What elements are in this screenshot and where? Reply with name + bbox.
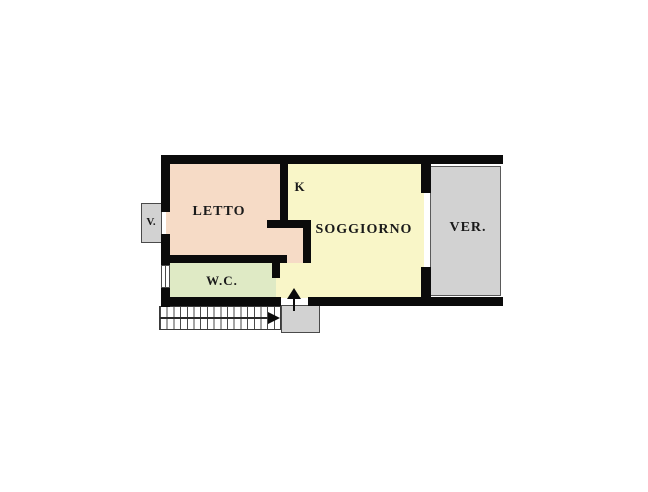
wall-letto-kitchen [280, 155, 288, 222]
wall-letto-wc [161, 255, 287, 263]
label-kitchen: K [294, 179, 305, 195]
label-veranda: VER. [449, 220, 486, 236]
wall-wc-stub [272, 263, 280, 278]
wall-left-upper [161, 155, 170, 212]
wall-top [161, 155, 503, 164]
label-letto: LETTO [193, 204, 246, 220]
stairs-direction-line [160, 317, 270, 319]
entrance-arrow-stem [293, 297, 295, 311]
wall-bottom-right [308, 297, 503, 306]
wall-vestibule-right [303, 220, 311, 263]
wall-veranda-bottom [421, 267, 431, 306]
wall-veranda-top [421, 155, 431, 193]
label-balcony: V. [146, 216, 155, 228]
wc-window-line [165, 266, 166, 287]
floor-plan: LETTO K SOGGIORNO VER. W.C. V. [0, 0, 648, 492]
label-soggiorno: SOGGIORNO [316, 222, 413, 238]
room-letto-vestibule [287, 222, 303, 263]
stair-landing [281, 305, 320, 333]
label-wc: W.C. [206, 273, 238, 289]
stairs-direction-arrow-icon [268, 312, 280, 324]
wall-bottom-left [161, 297, 281, 306]
